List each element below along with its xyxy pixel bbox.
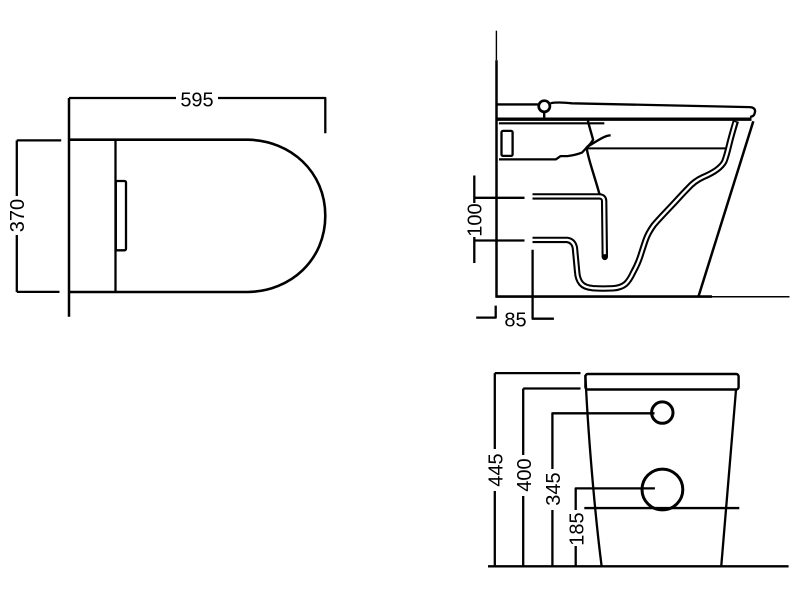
svg-text:345: 345 xyxy=(543,472,565,505)
svg-text:185: 185 xyxy=(566,512,588,545)
svg-text:100: 100 xyxy=(465,203,487,236)
svg-text:445: 445 xyxy=(486,453,508,486)
svg-text:400: 400 xyxy=(514,458,536,491)
svg-text:370: 370 xyxy=(7,199,29,232)
svg-text:595: 595 xyxy=(180,90,213,112)
svg-text:85: 85 xyxy=(504,309,526,331)
